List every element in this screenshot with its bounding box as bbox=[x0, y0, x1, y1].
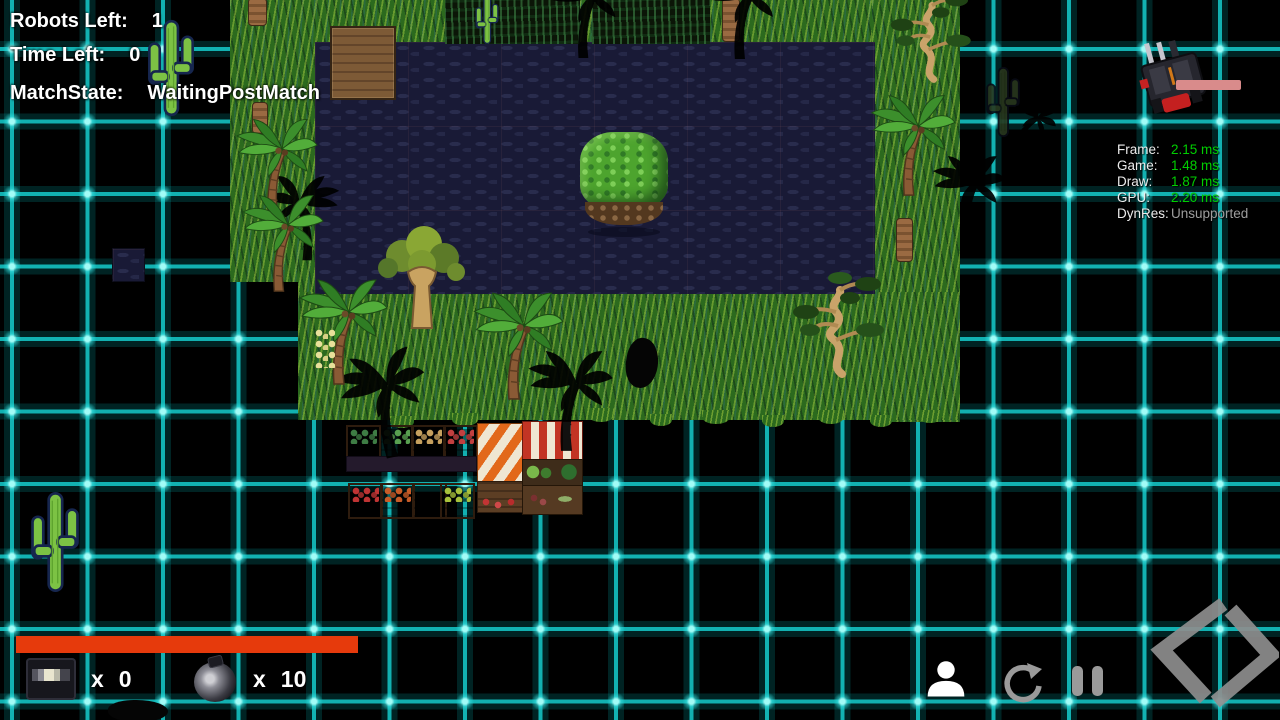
palm-tree bbox=[462, 285, 564, 402]
cactus bbox=[28, 484, 82, 600]
market-stall-orange bbox=[477, 423, 524, 513]
tile-map bbox=[0, 0, 1280, 720]
robots-left-value: 1 bbox=[152, 10, 163, 32]
ammo-times-label: x bbox=[91, 666, 104, 693]
robots-left-label: Robots Left: bbox=[10, 10, 128, 32]
restart-icon bbox=[997, 660, 1047, 708]
game-screen: Robots Left: 1 Time Left: 0 MatchState: … bbox=[0, 0, 1280, 720]
time-left-value: 0 bbox=[129, 44, 140, 66]
produce-crate bbox=[348, 483, 383, 519]
player-button[interactable] bbox=[924, 658, 968, 702]
time-left-label: Time Left: bbox=[10, 44, 105, 66]
grass-tuft bbox=[918, 410, 942, 423]
produce-crate bbox=[380, 483, 415, 519]
grass-tuft bbox=[762, 415, 784, 427]
banana-bunch bbox=[315, 328, 335, 368]
pause-bar-left bbox=[1072, 666, 1083, 696]
ammo-count: 0 bbox=[119, 666, 132, 693]
performance-panel: Frame: 2.15 ms Game: 1.48 ms Draw: 1.87 … bbox=[1117, 142, 1248, 222]
bomb-icon bbox=[194, 656, 238, 702]
grass-tuft bbox=[650, 414, 672, 426]
island-bush bbox=[580, 132, 668, 232]
robots-left-row: Robots Left: 1 bbox=[10, 10, 320, 32]
code-brackets-icon bbox=[1134, 598, 1279, 713]
perf-row-gpu: GPU: 2.20 ms bbox=[1117, 190, 1248, 206]
twisted-tree bbox=[790, 268, 890, 378]
match-state-row: MatchState: WaitingPostMatch bbox=[10, 82, 320, 104]
twisted-tree bbox=[888, 0, 976, 83]
palm-trunk bbox=[896, 218, 913, 262]
perf-row-dynres: DynRes: Unsupported bbox=[1117, 206, 1248, 222]
ammo-box-icon bbox=[26, 658, 76, 700]
reload-progress-bar bbox=[16, 636, 358, 653]
restart-button[interactable] bbox=[997, 660, 1047, 708]
perf-row-frame: Frame: 2.15 ms bbox=[1117, 142, 1248, 158]
perf-row-game: Game: 1.48 ms bbox=[1117, 158, 1248, 174]
grass-tuft bbox=[702, 410, 730, 424]
water-tile bbox=[112, 248, 145, 282]
bomb-counter: x 10 bbox=[194, 656, 306, 702]
perf-row-draw: Draw: 1.87 ms bbox=[1117, 174, 1248, 190]
produce-crate bbox=[440, 483, 475, 519]
palm-tree bbox=[860, 88, 956, 198]
robot-health-bar bbox=[1176, 80, 1241, 90]
match-hud: Robots Left: 1 Time Left: 0 MatchState: … bbox=[10, 10, 320, 104]
pause-button[interactable] bbox=[1072, 666, 1103, 696]
ammo-counter: x 0 bbox=[26, 658, 132, 700]
match-state-value: WaitingPostMatch bbox=[147, 82, 320, 104]
wooden-dock bbox=[330, 26, 396, 100]
code-brackets-logo bbox=[1134, 598, 1279, 713]
grass-tuft bbox=[818, 410, 844, 424]
palm-shadow bbox=[540, 0, 625, 60]
player-icon bbox=[924, 658, 968, 702]
large-tree bbox=[372, 222, 472, 332]
debris-shadow bbox=[108, 700, 168, 720]
grass-tuft bbox=[870, 415, 892, 427]
cactus bbox=[471, 0, 503, 46]
time-left-row: Time Left: 0 bbox=[10, 44, 320, 66]
bomb-count: 10 bbox=[281, 666, 307, 693]
bomb-times-label: x bbox=[253, 666, 266, 693]
pause-bar-right bbox=[1092, 666, 1103, 696]
match-state-label: MatchState: bbox=[10, 82, 123, 104]
palm-shadow bbox=[695, 0, 783, 61]
